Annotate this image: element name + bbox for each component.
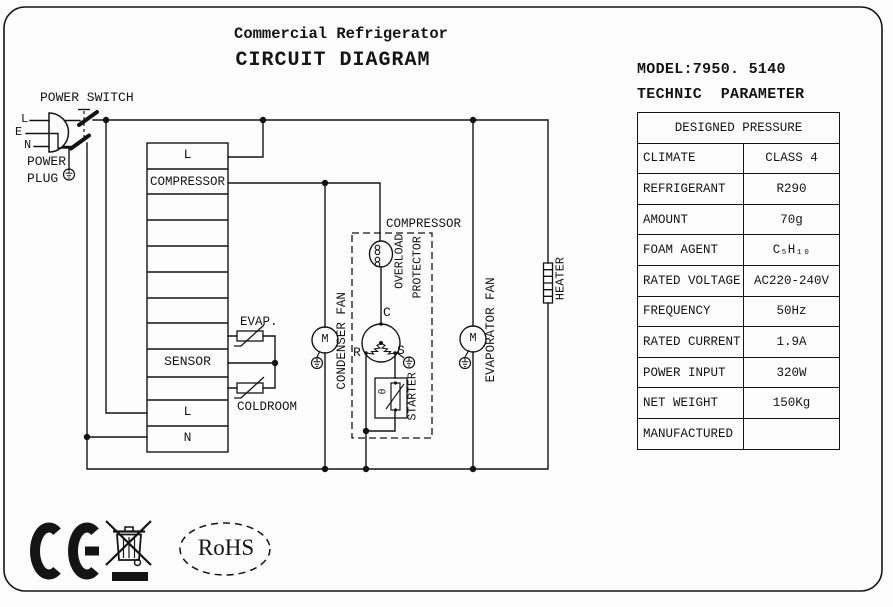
ground-symbols	[64, 169, 471, 369]
compressor-ground-icon	[404, 357, 415, 368]
circuit-diagram-sheet: Commercial Refrigerator CIRCUIT DIAGRAM …	[0, 0, 893, 607]
coldroom-thermistor-symbol	[234, 377, 264, 398]
table-row: REFRIGERANTR290	[638, 174, 840, 205]
heater-symbol	[544, 263, 553, 303]
evaporator-fan-m: M	[464, 332, 482, 346]
table-row: FOAM AGENTC₅H₁₀	[638, 235, 840, 266]
wires	[26, 120, 548, 469]
starter-label: STARTER	[408, 371, 421, 421]
table-row: AMOUNT70g	[638, 204, 840, 235]
coldroom-sensor-label: COLDROOM	[237, 400, 297, 414]
model-number: MODEL:7950. 5140	[637, 61, 786, 78]
condenser-fan-m: M	[316, 333, 334, 347]
table-row: RATED VOLTAGEAC220-240V	[638, 265, 840, 296]
table-row: CLIMATECLASS 4	[638, 143, 840, 174]
power-switch-symbol	[71, 110, 97, 149]
evap-sensor-label: EVAP.	[240, 315, 278, 329]
technic-parameter-table: DESIGNED PRESSURE CLIMATECLASS 4 REFRIGE…	[637, 112, 840, 450]
table-row: POWER INPUT320W	[638, 357, 840, 388]
power-plug-ground-icon	[64, 169, 75, 180]
rohs-label: RoHS	[181, 535, 271, 561]
table-row: NET WEIGHT150Kg	[638, 388, 840, 419]
page-title: CIRCUIT DIAGRAM	[183, 49, 483, 72]
power-plug-label-line1: POWER	[27, 155, 66, 170]
terminal-row-l-bottom: L	[147, 405, 228, 420]
power-switch-label: POWER SWITCH	[40, 91, 134, 106]
ce-mark-icon	[35, 527, 99, 574]
terminal-row-l-top: L	[147, 148, 228, 163]
table-row: RATED CURRENT1.9A	[638, 327, 840, 358]
starter-theta-label: θ	[379, 385, 390, 399]
condenser-fan-ground-icon	[312, 358, 323, 369]
terminal-row-compressor: COMPRESSOR	[147, 175, 228, 189]
overload-label-line2: PROTECTOR	[413, 235, 426, 299]
pin-l-label: L	[21, 113, 28, 127]
overload-protector-symbol	[370, 241, 393, 267]
terminal-row-sensor: SENSOR	[147, 355, 228, 370]
product-title: Commercial Refrigerator	[190, 26, 492, 44]
compressor-label: COMPRESSOR	[386, 217, 461, 231]
evaporator-fan-ground-icon	[460, 358, 471, 369]
motor-terminal-r: R	[353, 346, 361, 361]
evaporator-fan-label: EVAPORATOR FAN	[485, 265, 499, 395]
overload-label-line1: OVERLOAD	[395, 233, 408, 289]
technic-parameter-heading: TECHNIC PARAMETER	[637, 86, 804, 103]
heater-label: HEATER	[554, 253, 567, 305]
table-row: DESIGNED PRESSURE	[638, 113, 840, 144]
table-header: DESIGNED PRESSURE	[638, 113, 840, 144]
motor-terminal-c: C	[383, 306, 391, 321]
condenser-fan-label: CONDENSER FAN	[336, 286, 350, 396]
terminal-row-n: N	[147, 431, 228, 446]
table-row: MANUFACTURED	[638, 418, 840, 449]
pin-n-label: N	[24, 139, 31, 153]
power-plug-label-line2: PLUG	[27, 172, 58, 187]
table-row: FREQUENCY50Hz	[638, 296, 840, 327]
weee-bin-icon	[106, 521, 151, 581]
pin-e-label: E	[15, 126, 22, 140]
motor-terminal-s: S	[397, 344, 405, 359]
